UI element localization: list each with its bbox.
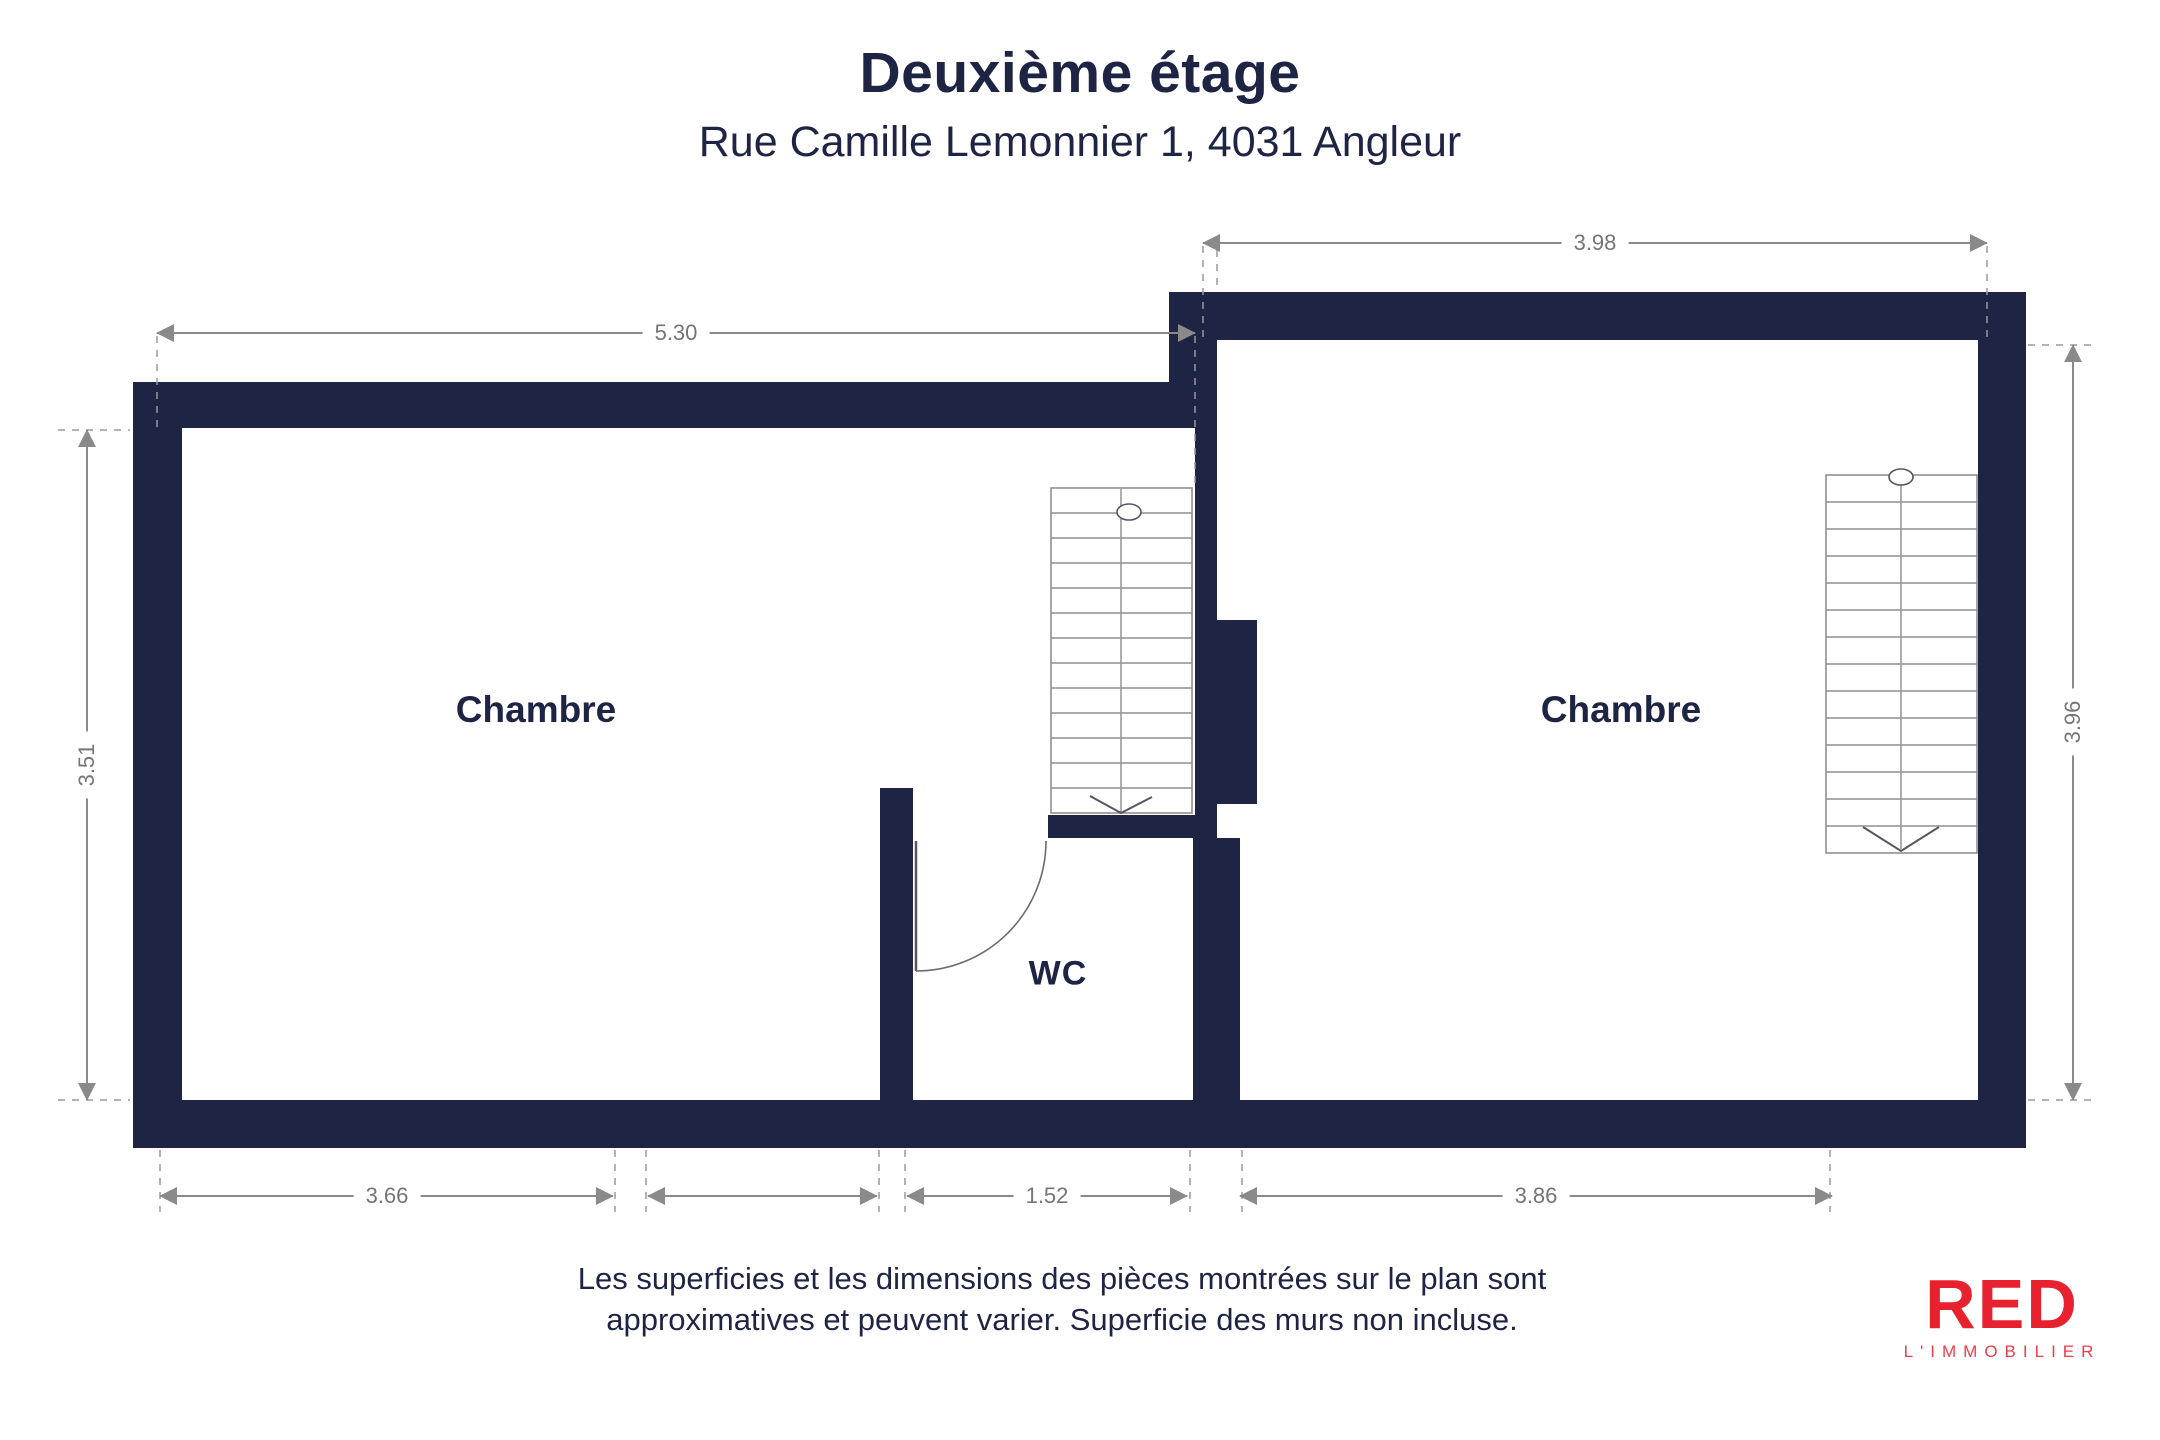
- wall-wc-top: [1048, 815, 1195, 838]
- staircase-left: [1051, 488, 1192, 813]
- disclaimer-line-1: Les superficies et les dimensions des pi…: [578, 1258, 1546, 1299]
- room-label-chambre-right: Chambre: [1541, 689, 1701, 731]
- agency-logo: RED L'IMMOBILIER: [1904, 1272, 2101, 1362]
- logo-brand-text: RED: [1904, 1272, 2101, 1336]
- stair-start-marker-right: [1889, 469, 1913, 485]
- dim-label-top-left: 5.30: [643, 320, 710, 346]
- wc-door: [916, 841, 1046, 971]
- wall-top-left: [133, 382, 1195, 428]
- staircase-right: [1826, 469, 1977, 853]
- dim-label-right: 3.96: [2060, 689, 2086, 756]
- wall-right-outer: [1978, 292, 2026, 1148]
- dim-label-left: 3.51: [74, 732, 100, 799]
- wall-top-right: [1169, 292, 2026, 340]
- dim-label-top-right: 3.98: [1562, 230, 1629, 256]
- logo-tagline-text: L'IMMOBILIER: [1904, 1342, 2101, 1362]
- floorplan-page: Deuxième étage Rue Camille Lemonnier 1, …: [0, 0, 2160, 1440]
- wall-middle-upper: [1195, 340, 1217, 838]
- dim-label-bottom-right: 3.86: [1503, 1183, 1570, 1209]
- room-label-chambre-left: Chambre: [456, 689, 616, 731]
- disclaimer: Les superficies et les dimensions des pi…: [578, 1258, 1546, 1340]
- wall-bottom: [133, 1100, 2026, 1148]
- room-label-wc: WC: [1029, 955, 1088, 994]
- floorplan-drawing: [0, 0, 2160, 1440]
- disclaimer-line-2: approximatives et peuvent varier. Superf…: [578, 1299, 1546, 1340]
- stair-start-marker-left: [1117, 504, 1141, 520]
- dim-label-bottom-left: 3.66: [354, 1183, 421, 1209]
- door-swing-arc: [916, 841, 1046, 971]
- wall-wc-left: [880, 788, 913, 1148]
- wall-middle-lower: [1193, 838, 1240, 1100]
- wall-left-outer: [133, 382, 182, 1148]
- dim-label-bottom-middle: 1.52: [1014, 1183, 1081, 1209]
- wall-middle-bump: [1217, 620, 1257, 804]
